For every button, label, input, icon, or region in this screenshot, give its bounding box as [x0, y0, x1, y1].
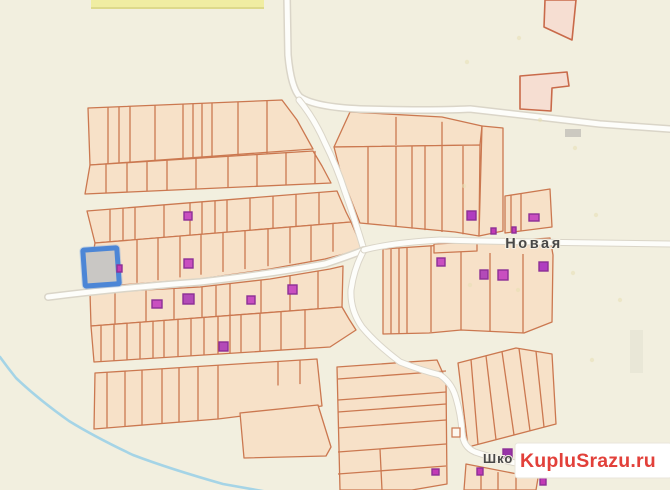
svg-text:Шко: Шко — [483, 451, 513, 466]
svg-text:Новая: Новая — [505, 236, 563, 252]
svg-text:KupluSrazu.ru: KupluSrazu.ru — [520, 450, 656, 472]
